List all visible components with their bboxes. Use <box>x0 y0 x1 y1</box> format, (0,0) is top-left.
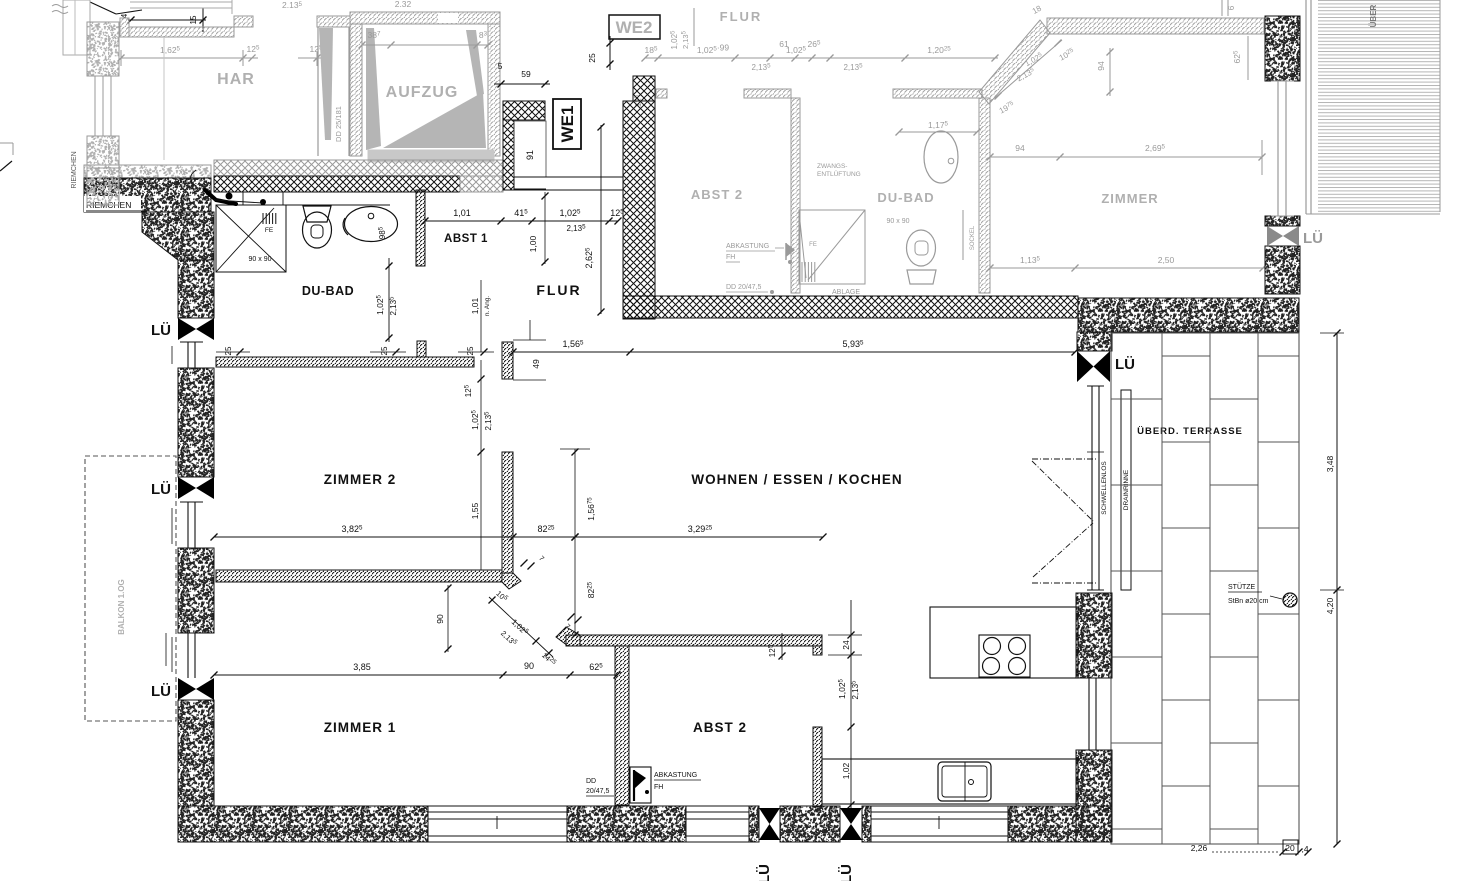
svg-text:2,50: 2,50 <box>1158 255 1175 265</box>
svg-text:3,48: 3,48 <box>1325 455 1335 472</box>
svg-text:DU-BAD: DU-BAD <box>877 190 934 205</box>
svg-text:61: 61 <box>779 39 789 49</box>
svg-text:1,00: 1,00 <box>528 235 538 252</box>
svg-text:LÜ: LÜ <box>1115 356 1135 373</box>
svg-text:ABST 2: ABST 2 <box>691 187 743 202</box>
svg-text:2.32: 2.32 <box>395 0 412 9</box>
svg-text:FE: FE <box>809 242 817 248</box>
svg-text:2,26: 2,26 <box>1191 843 1208 853</box>
svg-text:LÜ: LÜ <box>151 481 171 498</box>
svg-text:FLUR: FLUR <box>536 282 581 298</box>
svg-text:ÜBERD. TERRASSE: ÜBERD. TERRASSE <box>1137 426 1243 437</box>
svg-text:LÜ: LÜ <box>756 864 773 881</box>
svg-text:StBn ø20 cm: StBn ø20 cm <box>1228 598 1269 605</box>
svg-text:FH: FH <box>726 254 735 261</box>
svg-text:WE2: WE2 <box>616 18 653 37</box>
svg-text:FE: FE <box>265 227 274 234</box>
svg-text:ABKASTUNG: ABKASTUNG <box>654 772 697 779</box>
svg-text:ÜBER: ÜBER <box>1369 4 1378 27</box>
svg-text:94: 94 <box>1096 61 1106 71</box>
svg-text:90: 90 <box>524 661 534 671</box>
svg-text:94: 94 <box>1015 143 1025 153</box>
svg-text:RIEMCHEN: RIEMCHEN <box>71 151 78 188</box>
svg-text:LÜ: LÜ <box>151 683 171 700</box>
svg-text:ABST 2: ABST 2 <box>693 720 747 735</box>
svg-text:WE1: WE1 <box>558 106 577 143</box>
svg-text:DU-BAD: DU-BAD <box>302 284 354 298</box>
svg-text:n. Ang.: n. Ang. <box>484 296 491 316</box>
svg-text:FLUR: FLUR <box>720 9 763 24</box>
svg-text:LÜ: LÜ <box>151 322 171 339</box>
svg-text:25: 25 <box>466 346 475 355</box>
svg-text:FH: FH <box>654 784 663 791</box>
svg-text:4: 4 <box>120 13 129 18</box>
svg-text:5: 5 <box>498 61 503 71</box>
svg-text:1,55: 1,55 <box>470 502 480 519</box>
svg-text:1,02: 1,02 <box>841 762 851 779</box>
svg-text:90 x 90: 90 x 90 <box>887 218 910 225</box>
svg-text:LÜ: LÜ <box>1303 230 1323 247</box>
svg-text:AUFZUG: AUFZUG <box>386 84 459 101</box>
svg-text:ZIMMER 1: ZIMMER 1 <box>324 720 397 735</box>
svg-text:ZWANGS-: ZWANGS- <box>817 163 847 170</box>
svg-text:HAR: HAR <box>217 71 255 88</box>
svg-text:DD: DD <box>586 778 596 785</box>
svg-text:1,01: 1,01 <box>470 297 480 314</box>
svg-text:91: 91 <box>525 150 535 160</box>
svg-text:3,85: 3,85 <box>353 662 371 672</box>
svg-text:SOCKEL: SOCKEL <box>970 225 976 250</box>
svg-text:STÜTZE: STÜTZE <box>1228 583 1256 591</box>
svg-text:ABLAGE: ABLAGE <box>832 289 860 296</box>
svg-text:20/47,5: 20/47,5 <box>586 788 609 795</box>
svg-text:ZIMMER: ZIMMER <box>1101 191 1158 206</box>
svg-text:1,01: 1,01 <box>453 208 471 218</box>
svg-text:25: 25 <box>380 346 389 355</box>
svg-text:25: 25 <box>587 53 597 63</box>
svg-text:4,20: 4,20 <box>1325 597 1335 614</box>
svg-text:WOHNEN / ESSEN / KOCHEN: WOHNEN / ESSEN / KOCHEN <box>691 472 902 487</box>
svg-text:59: 59 <box>521 69 531 79</box>
svg-text:DD 20/47,5: DD 20/47,5 <box>726 284 762 291</box>
svg-text:20: 20 <box>1285 843 1295 853</box>
svg-text:ABST 1: ABST 1 <box>444 233 488 245</box>
svg-text:SCHWELLENLOS: SCHWELLENLOS <box>1101 461 1108 515</box>
svg-text:24: 24 <box>841 640 851 650</box>
svg-text:90 x 90: 90 x 90 <box>249 256 272 263</box>
svg-text:DRAINRINNE: DRAINRINNE <box>1123 469 1130 510</box>
svg-text:ABKASTUNG: ABKASTUNG <box>726 243 769 250</box>
svg-text:90: 90 <box>435 614 445 624</box>
svg-text:ZIMMER 2: ZIMMER 2 <box>324 472 397 487</box>
svg-text:BALKON 1.OG: BALKON 1.OG <box>117 579 126 635</box>
svg-text:DD 25/181: DD 25/181 <box>334 106 343 142</box>
svg-text:25: 25 <box>224 346 233 355</box>
svg-text:15: 15 <box>189 15 198 24</box>
svg-text:49: 49 <box>531 359 541 369</box>
svg-text:LÜ: LÜ <box>838 864 855 881</box>
svg-text:ENTLÜFTUNG: ENTLÜFTUNG <box>817 170 861 178</box>
